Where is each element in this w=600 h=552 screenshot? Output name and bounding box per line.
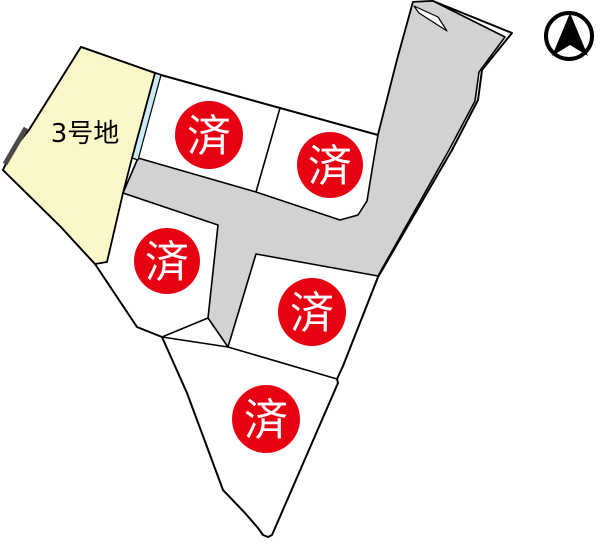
north-compass-icon bbox=[546, 13, 592, 59]
sold-badge-text: 済 bbox=[308, 141, 352, 192]
sold-badge-text: 済 bbox=[145, 237, 189, 288]
sold-badge-text: 済 bbox=[187, 111, 231, 162]
sold-badge-plot-bottom: 済 bbox=[232, 385, 300, 453]
sold-badge-plot-left: 済 bbox=[134, 228, 200, 294]
sold-badge-plot1: 済 bbox=[175, 101, 243, 169]
sold-badge-plot-mid: 済 bbox=[278, 278, 346, 346]
plot-3-label: 3号地 bbox=[51, 119, 120, 149]
sold-badge-text: 済 bbox=[290, 288, 334, 339]
sold-badge-plot2: 済 bbox=[297, 132, 363, 198]
plot-map-canvas: 3号地 済 済 済 済 済 bbox=[0, 0, 600, 552]
sold-badge-text: 済 bbox=[244, 395, 288, 446]
plot-map: 3号地 済 済 済 済 済 bbox=[0, 0, 600, 552]
